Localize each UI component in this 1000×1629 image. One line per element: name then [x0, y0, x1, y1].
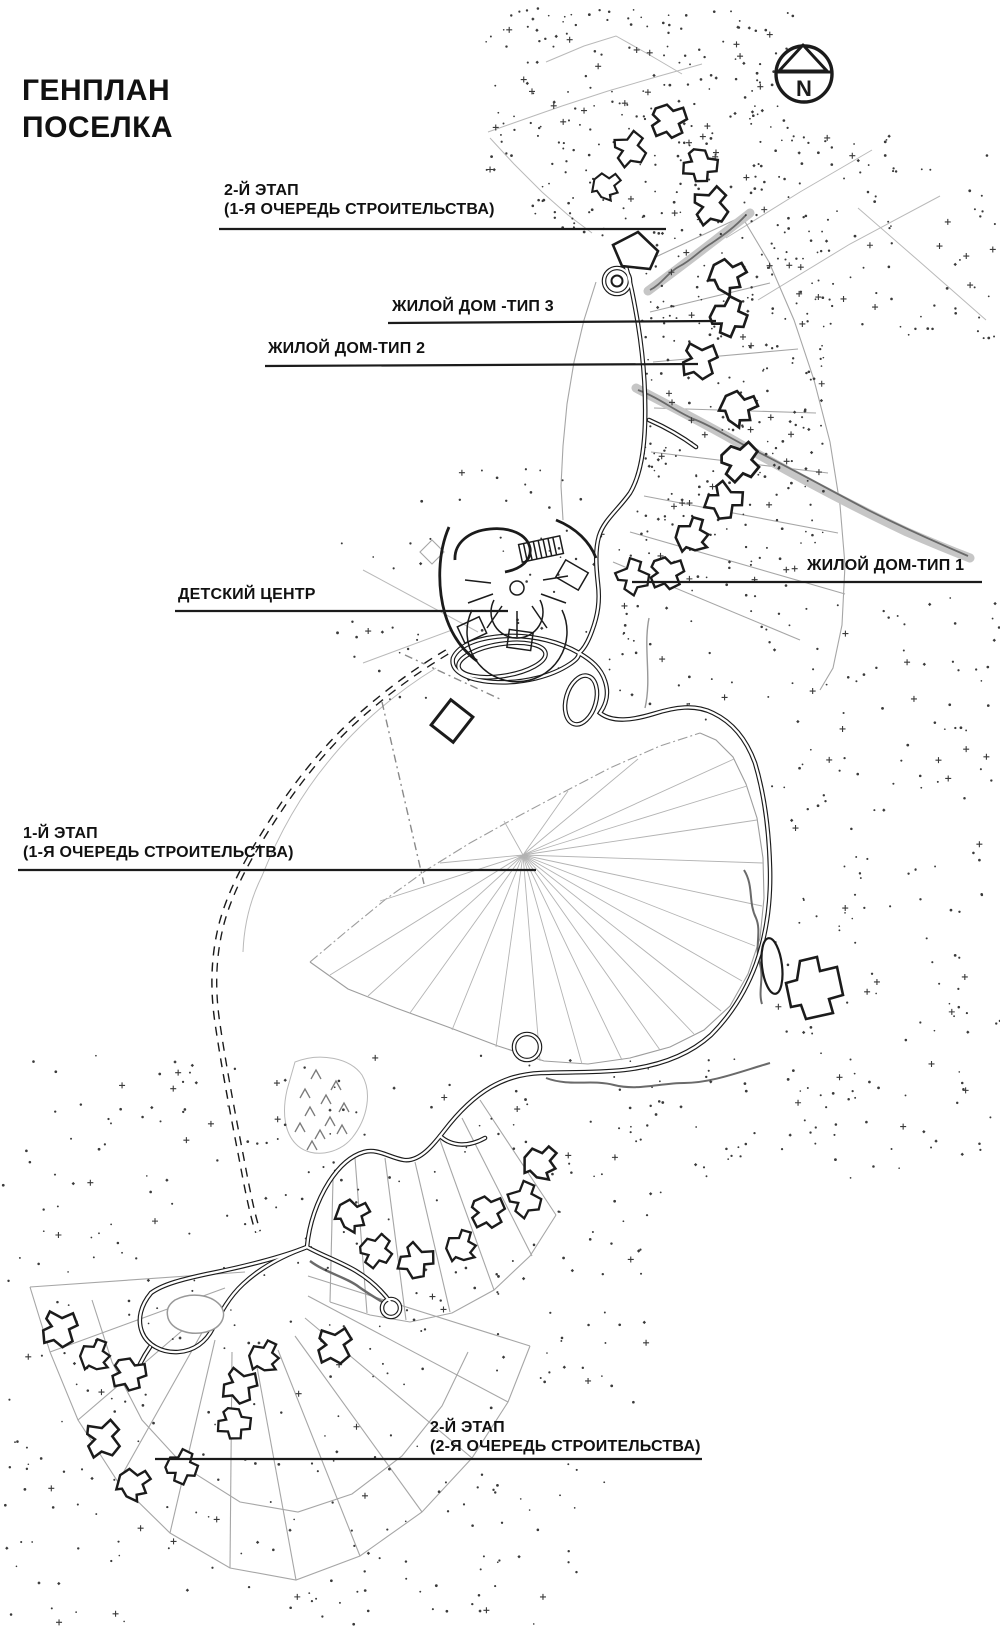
house-footprint — [469, 1194, 507, 1232]
marsh-symbols — [295, 1070, 349, 1150]
house-footprint — [591, 171, 621, 202]
house-footprint — [77, 1337, 115, 1375]
house-footprint — [671, 514, 714, 557]
streams — [310, 213, 970, 1309]
page-title: ГЕНПЛАН ПОСЕЛКА — [22, 72, 173, 146]
leader-house-type2 — [265, 364, 698, 366]
label-house-type2: ЖИЛОЙ ДОМ-ТИП 2 — [268, 339, 425, 358]
house-footprint — [705, 293, 754, 342]
house-footprint — [706, 254, 749, 298]
central-field — [310, 655, 764, 1064]
house-footprint — [691, 185, 732, 228]
dashed-road — [214, 652, 447, 1232]
vegetation-dots — [2, 7, 1000, 1625]
house-footprint — [220, 1365, 261, 1407]
house-footprint — [701, 477, 748, 525]
label-house-type1: ЖИЛОЙ ДОМ-ТИП 1 — [807, 556, 964, 575]
leader-house-type3 — [388, 321, 716, 323]
site-plan-drawing: N — [0, 0, 1000, 1629]
cross-building — [786, 957, 843, 1019]
label-stage1-phase1: 1-Й ЭТАП (1-Я ОЧЕРЕДЬ СТРОИТЕЛЬСТВА) — [23, 824, 294, 862]
label-house-type3: ЖИЛОЙ ДОМ -ТИП 3 — [392, 297, 554, 316]
house-footprint — [115, 1465, 153, 1503]
house-footprint — [611, 129, 650, 169]
stage-area-pentagon — [613, 232, 658, 269]
genplan-sheet: N ГЕНПЛАН ПОСЕЛКА 2-Й ЭТАП (1-Я ОЧЕРЕДЬ … — [0, 0, 1000, 1629]
label-stage2-phase2: 2-Й ЭТАП (2-Я ОЧЕРЕДЬ СТРОИТЕЛЬСТВА) — [430, 1418, 701, 1456]
ponds — [167, 937, 785, 1333]
house-footprint — [612, 554, 656, 598]
house-footprint — [212, 1402, 256, 1446]
house-footprint — [681, 341, 720, 381]
house-footprint — [161, 1446, 203, 1488]
roadside-building — [431, 700, 473, 742]
house-footprint — [647, 554, 687, 594]
north-arrow: N — [776, 45, 832, 102]
label-kids-center: ДЕТСКИЙ ЦЕНТР — [178, 585, 316, 604]
house-footprint — [394, 1239, 438, 1284]
house-footprint — [716, 386, 761, 431]
label-stage2-phase1: 2-Й ЭТАП (1-Я ОЧЕРЕДЬ СТРОИТЕЛЬСТВА) — [224, 181, 495, 219]
house-footprint — [333, 1195, 372, 1235]
house-footprint — [648, 101, 690, 143]
north-label: N — [796, 76, 812, 101]
parcel-lines — [30, 36, 986, 1580]
house-footprint — [247, 1339, 283, 1375]
house-footprint — [319, 1328, 352, 1363]
house-footprint — [442, 1227, 481, 1266]
